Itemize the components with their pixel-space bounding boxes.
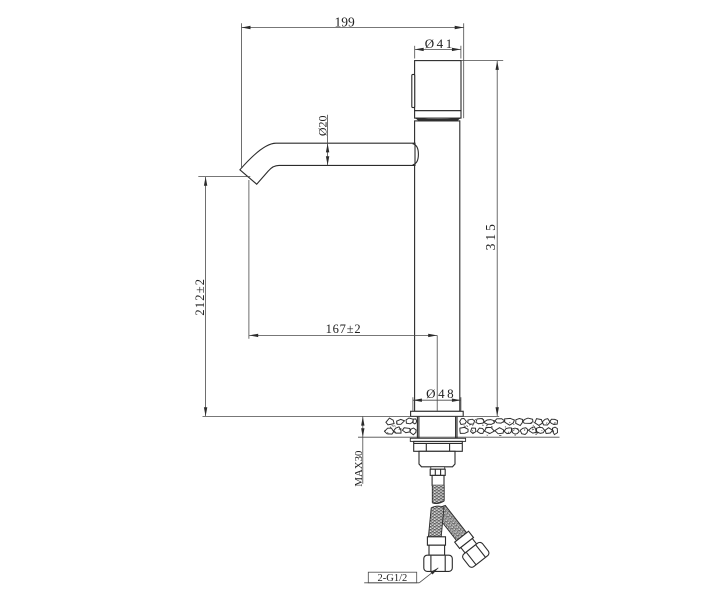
svg-text:167±2: 167±2	[326, 322, 362, 336]
svg-text:315: 315	[483, 221, 498, 250]
svg-text:Ø41: Ø41	[425, 36, 455, 51]
svg-text:Ø48: Ø48	[426, 386, 456, 401]
svg-text:Ø20: Ø20	[316, 115, 330, 136]
svg-text:199: 199	[334, 15, 355, 30]
svg-text:2-G1/2: 2-G1/2	[378, 573, 408, 584]
svg-text:212±2: 212±2	[193, 278, 207, 316]
svg-text:MAX30: MAX30	[353, 451, 365, 487]
